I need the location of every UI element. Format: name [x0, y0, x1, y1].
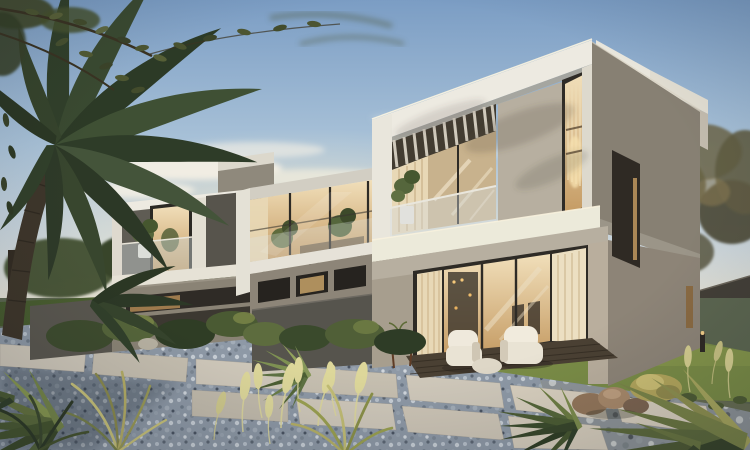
vignette	[0, 0, 750, 450]
villa-render-illustration	[0, 0, 750, 450]
render-canvas	[0, 0, 750, 450]
